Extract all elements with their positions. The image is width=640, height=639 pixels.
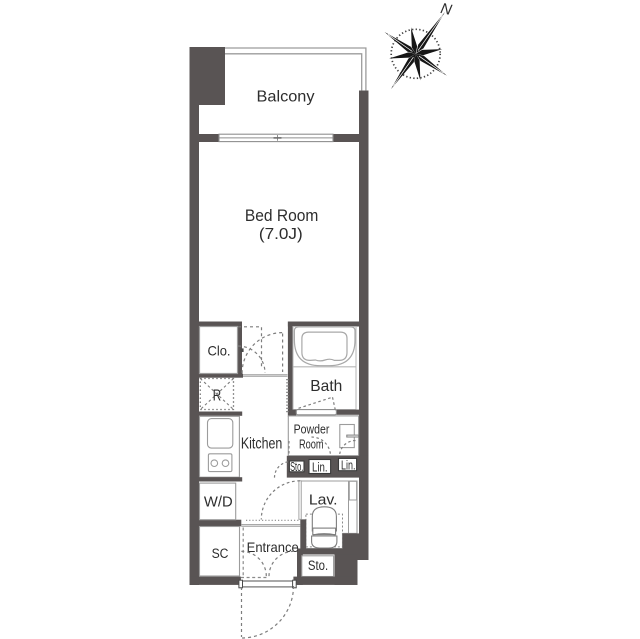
svg-text:SC: SC: [212, 545, 229, 561]
svg-text:Sto.: Sto.: [290, 461, 303, 474]
svg-text:Clo.: Clo.: [207, 342, 230, 358]
svg-text:W/D: W/D: [204, 494, 233, 510]
svg-text:(7.0J): (7.0J): [259, 226, 303, 243]
svg-text:Lin.: Lin.: [341, 459, 355, 473]
svg-text:R: R: [213, 387, 222, 404]
svg-text:Bed Room: Bed Room: [245, 207, 319, 225]
svg-text:Sto.: Sto.: [308, 558, 328, 573]
svg-text:Lin.: Lin.: [312, 461, 328, 474]
svg-text:Lav.: Lav.: [309, 491, 338, 508]
svg-text:Entrance: Entrance: [247, 540, 299, 555]
svg-text:Kitchen: Kitchen: [241, 435, 282, 453]
svg-text:Balcony: Balcony: [257, 88, 315, 105]
svg-text:Room: Room: [299, 438, 324, 452]
svg-text:Bath: Bath: [310, 378, 342, 395]
svg-text:Powder: Powder: [294, 421, 330, 436]
